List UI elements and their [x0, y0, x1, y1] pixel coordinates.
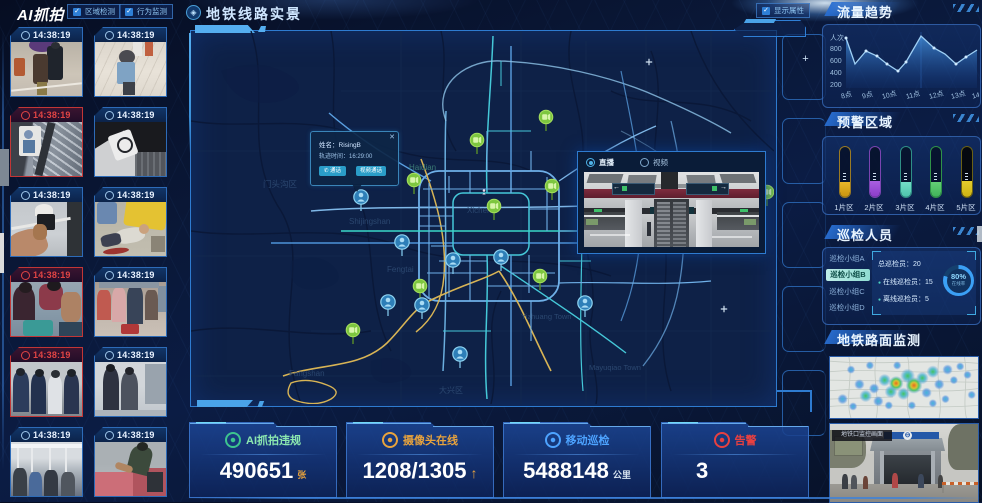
svg-text:人次: 人次: [830, 33, 844, 42]
svg-text:600: 600: [830, 58, 842, 65]
svg-text:13点: 13点: [950, 90, 966, 101]
svg-text:Shijingshan: Shijingshan: [349, 217, 390, 226]
svg-text:门头沟区: 门头沟区: [263, 179, 298, 189]
svg-text:8点: 8点: [840, 90, 853, 100]
svg-text:大兴区: 大兴区: [439, 385, 463, 395]
svg-text:10点: 10点: [881, 90, 897, 101]
svg-text:800: 800: [830, 46, 842, 53]
svg-text:Fengtai: Fengtai: [387, 265, 414, 274]
svg-text:14: 14: [971, 92, 979, 101]
svg-text:12点: 12点: [928, 90, 944, 101]
svg-text:9点: 9点: [861, 90, 874, 100]
svg-text:Haidian: Haidian: [409, 163, 436, 172]
svg-text:Mayuqiao Town: Mayuqiao Town: [589, 363, 641, 372]
svg-text:400: 400: [830, 70, 842, 77]
svg-text:Fangshan: Fangshan: [289, 369, 325, 378]
svg-text:200: 200: [830, 82, 842, 89]
svg-text:11点: 11点: [905, 90, 921, 101]
svg-text:Yizhuang Town: Yizhuang Town: [521, 312, 571, 321]
